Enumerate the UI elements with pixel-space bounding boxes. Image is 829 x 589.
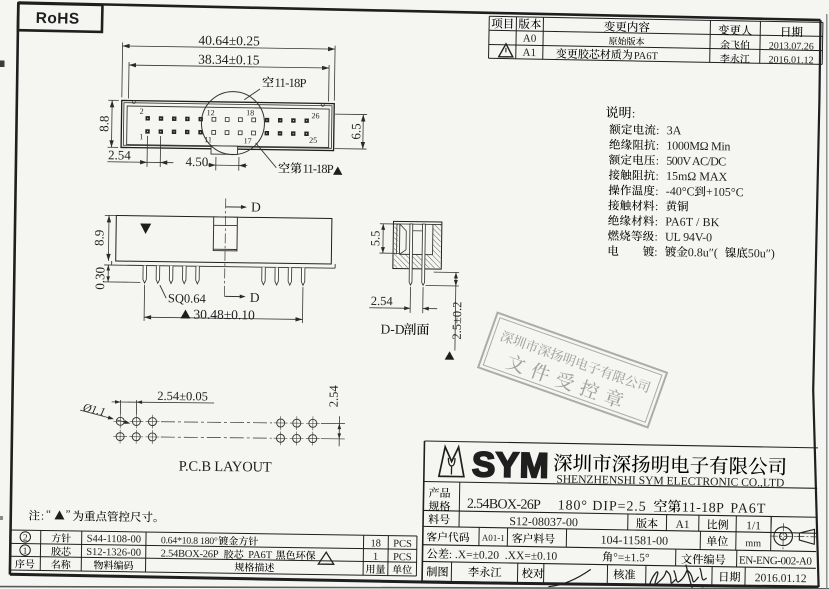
svg-text:40.64±0.25: 40.64±0.25 bbox=[198, 33, 260, 49]
svg-text:50u″): 50u″) bbox=[748, 246, 775, 260]
svg-text:6.5: 6.5 bbox=[348, 123, 363, 139]
svg-text:2: 2 bbox=[140, 107, 144, 116]
svg-text:mm: mm bbox=[745, 538, 761, 549]
svg-text:180° DIP=2.5: 180° DIP=2.5 bbox=[558, 498, 646, 515]
svg-text:2016.01.12: 2016.01.12 bbox=[768, 55, 813, 67]
svg-text:0.30: 0.30 bbox=[92, 267, 107, 290]
svg-text:SYM: SYM bbox=[472, 445, 550, 485]
svg-text::: : bbox=[654, 231, 657, 243]
svg-text:D: D bbox=[251, 199, 261, 214]
svg-text::: : bbox=[654, 247, 657, 259]
svg-text:PA6T / BK: PA6T / BK bbox=[665, 214, 720, 229]
svg-text:11-18P: 11-18P bbox=[302, 162, 333, 176]
svg-text:SQ0.64: SQ0.64 bbox=[168, 291, 207, 306]
svg-text:S12-08037-00: S12-08037-00 bbox=[509, 514, 578, 529]
svg-text::: : bbox=[655, 201, 658, 213]
svg-text:3A: 3A bbox=[667, 123, 682, 137]
svg-text:500V AC/DC: 500V AC/DC bbox=[666, 154, 726, 169]
svg-text:2.54: 2.54 bbox=[108, 147, 131, 162]
svg-text:18: 18 bbox=[246, 108, 254, 117]
svg-text::: : bbox=[655, 171, 658, 183]
svg-text:1: 1 bbox=[373, 552, 378, 563]
svg-text:D-D: D-D bbox=[380, 322, 404, 337]
svg-text:2: 2 bbox=[23, 533, 28, 543]
svg-text:S44-1108-00: S44-1108-00 bbox=[87, 534, 142, 546]
svg-text:°=±1.5°: °=±1.5° bbox=[613, 552, 650, 565]
svg-text::: : bbox=[656, 140, 659, 152]
svg-text:UL 94V-0: UL 94V-0 bbox=[665, 230, 712, 245]
svg-text::: : bbox=[655, 186, 658, 198]
svg-text:EN-ENG-002-A0: EN-ENG-002-A0 bbox=[739, 555, 813, 568]
svg-text:2.5±0.2: 2.5±0.2 bbox=[450, 301, 465, 339]
svg-text:D: D bbox=[250, 290, 260, 305]
svg-text:“: “ bbox=[46, 508, 51, 520]
svg-text:0.64*10.8 180°: 0.64*10.8 180° bbox=[161, 535, 218, 547]
svg-text:17: 17 bbox=[244, 136, 252, 145]
svg-text:1: 1 bbox=[23, 547, 28, 557]
svg-text:A0: A0 bbox=[523, 33, 537, 45]
svg-text:12: 12 bbox=[207, 108, 215, 117]
svg-text:11-18P: 11-18P bbox=[274, 76, 306, 90]
svg-text:26: 26 bbox=[312, 111, 320, 120]
svg-text:8.9: 8.9 bbox=[91, 230, 106, 246]
svg-text::: : bbox=[656, 125, 659, 137]
svg-text:25: 25 bbox=[309, 136, 317, 145]
svg-text:15mΩ MAX: 15mΩ MAX bbox=[666, 169, 728, 184]
svg-text:5.5: 5.5 bbox=[368, 230, 382, 246]
svg-text:11-18P: 11-18P bbox=[682, 501, 724, 517]
svg-text:PCS: PCS bbox=[393, 552, 412, 563]
svg-text:1: 1 bbox=[139, 132, 143, 141]
svg-text:PA6T: PA6T bbox=[634, 51, 659, 62]
svg-text:2.54: 2.54 bbox=[327, 384, 341, 407]
svg-text:2.54BOX-26P: 2.54BOX-26P bbox=[161, 549, 219, 561]
svg-text:A01-1: A01-1 bbox=[482, 533, 505, 543]
svg-text:: .X=±0.20 .XX=±0.10: : .X=±0.20 .XX=±0.10 bbox=[449, 549, 558, 563]
svg-text:S12-1326-00: S12-1326-00 bbox=[86, 547, 141, 559]
svg-text:2016.01.12: 2016.01.12 bbox=[755, 572, 807, 585]
svg-text:1/1: 1/1 bbox=[746, 520, 761, 532]
svg-text:A1: A1 bbox=[675, 519, 690, 531]
svg-text:2.54: 2.54 bbox=[371, 294, 394, 308]
svg-text:-40°C: -40°C bbox=[666, 184, 695, 198]
svg-text:”: ” bbox=[65, 508, 70, 520]
svg-text::: : bbox=[656, 155, 659, 167]
svg-text:8.8: 8.8 bbox=[96, 115, 111, 131]
svg-text:P.C.B LAYOUT: P.C.B LAYOUT bbox=[179, 459, 272, 476]
svg-text:1000MΩ Min: 1000MΩ Min bbox=[666, 138, 730, 153]
svg-text:+105°C: +105°C bbox=[706, 185, 744, 200]
svg-text:30.48±0.10: 30.48±0.10 bbox=[193, 307, 255, 323]
svg-text::: : bbox=[632, 106, 636, 120]
svg-text:18: 18 bbox=[370, 538, 381, 549]
svg-text:A1: A1 bbox=[522, 47, 536, 59]
svg-text:2.54BOX-26P: 2.54BOX-26P bbox=[467, 497, 541, 513]
svg-text:RoHS: RoHS bbox=[36, 10, 80, 28]
svg-text:2013.07.26: 2013.07.26 bbox=[769, 41, 814, 53]
svg-text:PA6T: PA6T bbox=[248, 550, 273, 561]
svg-text:104-11581-00: 104-11581-00 bbox=[600, 533, 668, 548]
svg-text:PCS: PCS bbox=[393, 539, 412, 550]
svg-text:2.54±0.05: 2.54±0.05 bbox=[157, 389, 208, 404]
svg-text:PA6T: PA6T bbox=[730, 501, 766, 517]
svg-text:38.34±0.15: 38.34±0.15 bbox=[198, 52, 260, 68]
svg-text::: : bbox=[655, 216, 658, 228]
svg-text::: : bbox=[41, 511, 44, 523]
svg-text:0.8u″(: 0.8u″( bbox=[688, 245, 718, 259]
svg-text:4.50: 4.50 bbox=[185, 154, 208, 169]
